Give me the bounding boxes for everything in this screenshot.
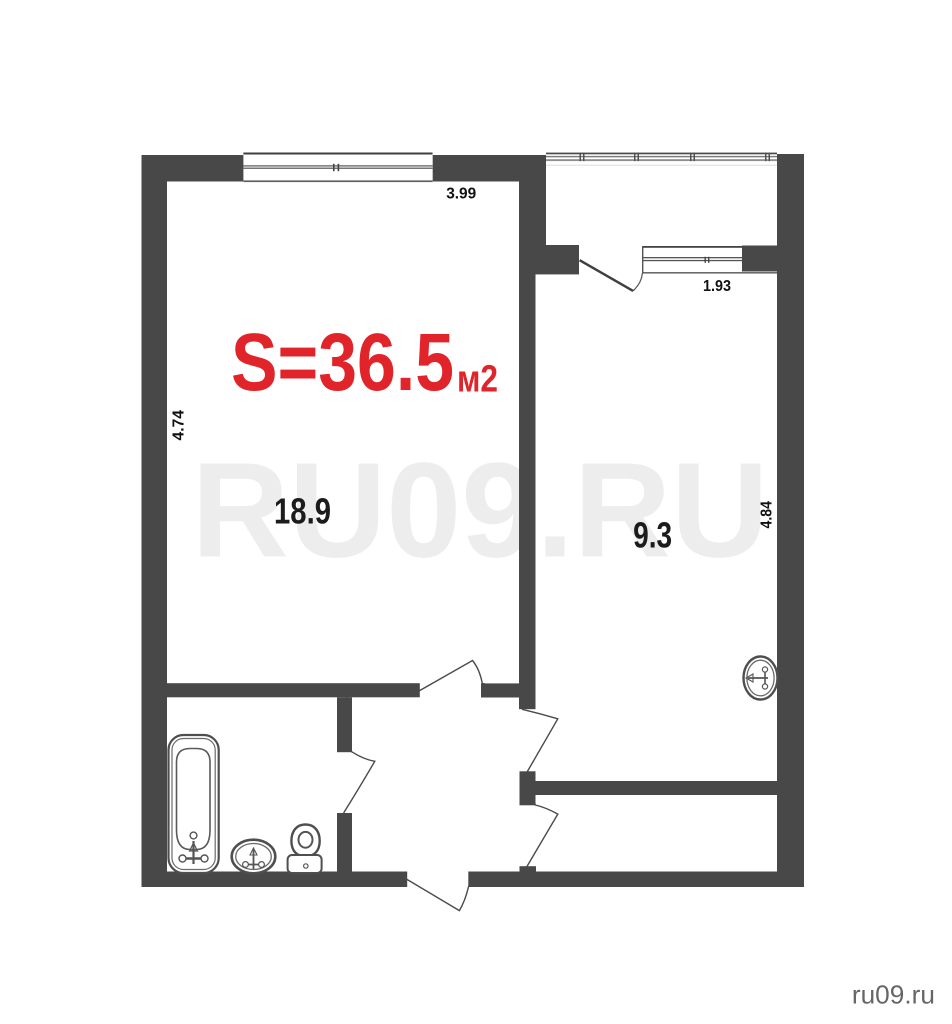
svg-text:3.99: 3.99 xyxy=(446,186,476,203)
svg-text:S=36.5: S=36.5 xyxy=(231,317,454,408)
svg-text:1.93: 1.93 xyxy=(703,278,731,295)
svg-text:ru09.ru: ru09.ru xyxy=(852,980,935,1010)
svg-text:4.84: 4.84 xyxy=(759,501,776,529)
svg-text:9.3: 9.3 xyxy=(633,515,672,556)
svg-text:18.9: 18.9 xyxy=(274,491,331,532)
svg-text:м2: м2 xyxy=(457,359,498,401)
svg-text:4.74: 4.74 xyxy=(171,410,188,441)
